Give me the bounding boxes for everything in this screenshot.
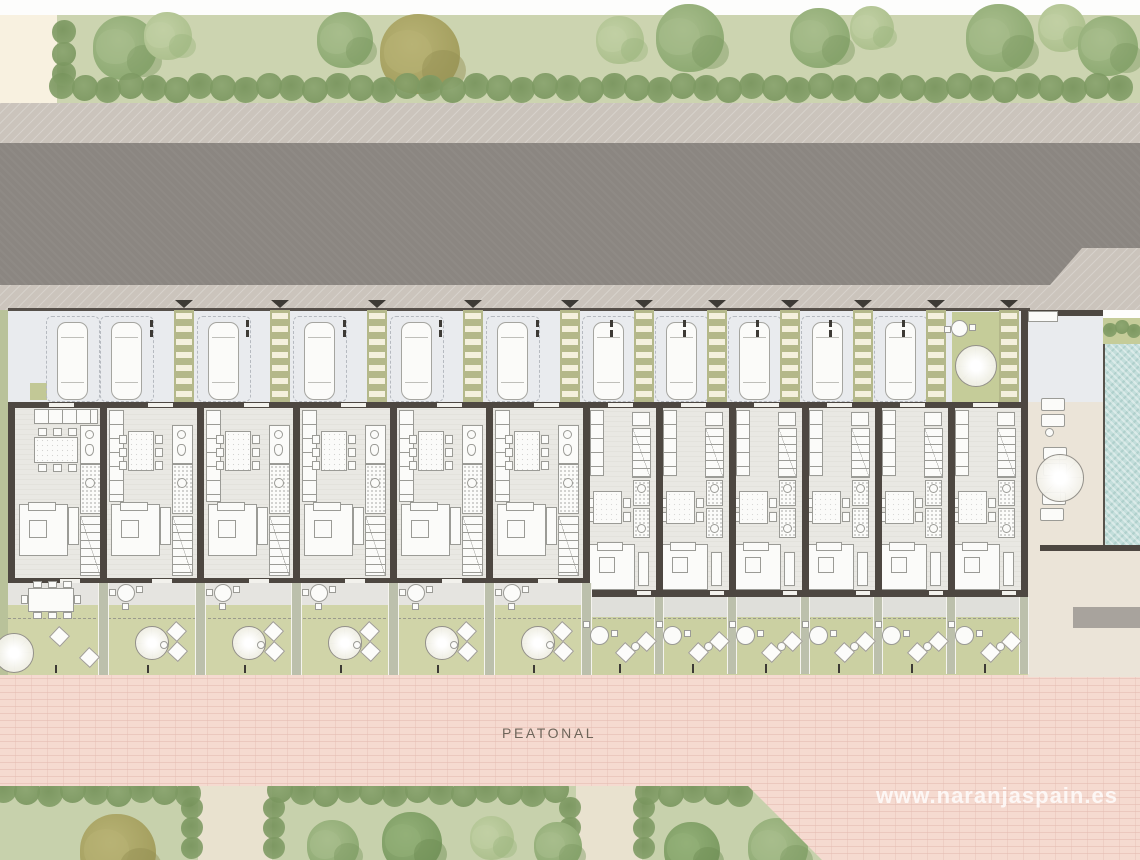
bistro-chair: [219, 603, 226, 610]
bistro-chair: [729, 621, 736, 628]
sofa-back: [217, 502, 245, 511]
chair: [445, 461, 453, 470]
parking-walkway: [270, 310, 290, 402]
shower-drain: [929, 524, 938, 533]
party-wall: [875, 402, 882, 597]
coffee-table: [964, 557, 980, 573]
chair: [38, 464, 47, 472]
bistro-chair: [903, 630, 910, 637]
coffee-table: [507, 520, 525, 538]
armchair: [353, 507, 364, 545]
entry-arrow: [368, 300, 386, 308]
party-wall: [948, 402, 955, 597]
bistro-table: [955, 626, 974, 645]
shower-room: [998, 508, 1015, 538]
coffee-table: [314, 520, 332, 538]
tree-shadow: [334, 843, 363, 860]
party-wall: [293, 402, 300, 584]
shower-drain: [85, 478, 95, 488]
chair: [252, 435, 260, 444]
fence-post: [838, 664, 840, 673]
bistro-chair: [233, 586, 240, 593]
dining-table: [321, 431, 347, 471]
fence-post: [765, 664, 767, 673]
coffee-table: [745, 557, 761, 573]
bay-tick: [610, 320, 613, 327]
fence-post: [244, 665, 246, 673]
chair: [915, 512, 923, 522]
staircase: [80, 516, 101, 576]
shower-room: [172, 464, 193, 514]
washbasin: [783, 484, 792, 493]
window: [754, 403, 779, 407]
fence-post: [533, 665, 535, 673]
washbasin: [710, 484, 719, 493]
sofa-back: [670, 542, 696, 551]
armchair: [930, 552, 941, 586]
bistro-table: [214, 584, 232, 602]
armchair: [1003, 552, 1014, 586]
entry-arrow: [464, 300, 482, 308]
car: [304, 322, 335, 400]
coffee-table: [121, 520, 139, 538]
cupboard: [924, 412, 942, 426]
shower-room: [269, 464, 290, 514]
parking-walkway: [174, 310, 194, 402]
chair: [696, 512, 704, 522]
chair: [48, 612, 57, 619]
chair: [21, 595, 28, 604]
shower-room: [365, 464, 386, 514]
chair: [33, 581, 42, 588]
bay-tick: [439, 320, 442, 327]
shower-drain: [783, 524, 792, 533]
cupboard: [778, 412, 796, 426]
shower-room: [558, 464, 579, 514]
chair: [348, 461, 356, 470]
party-wall: [729, 402, 736, 597]
bistro-chair: [206, 589, 213, 596]
shower-room: [80, 464, 101, 514]
staircase: [462, 516, 483, 576]
washbasin: [274, 430, 283, 439]
fence-post: [147, 665, 149, 673]
toilet: [274, 444, 283, 456]
tree-shadow: [493, 836, 517, 858]
garden-fence: [484, 583, 495, 675]
dining-table: [812, 491, 841, 524]
car: [739, 322, 770, 400]
garden-side-table: [353, 641, 361, 649]
armchair: [257, 507, 268, 545]
chair: [445, 435, 453, 444]
walkway-paving: [272, 313, 288, 399]
chair: [505, 435, 513, 444]
chair: [541, 461, 549, 470]
chair: [119, 461, 127, 470]
entry-arrow: [175, 300, 193, 308]
car: [208, 322, 239, 400]
shower-drain: [710, 524, 719, 533]
coffee-table: [411, 520, 429, 538]
staircase: [172, 516, 193, 576]
dining-table: [958, 491, 987, 524]
walkway-paving: [709, 313, 725, 399]
entry-arrow: [781, 300, 799, 308]
hedge-bush: [263, 837, 285, 859]
chair: [38, 428, 47, 436]
tree-shadow: [414, 839, 447, 860]
parking-walkway: [780, 310, 800, 402]
chair: [119, 435, 127, 444]
window: [973, 403, 998, 407]
staircase: [851, 428, 870, 478]
armchair: [68, 507, 79, 545]
kitchen-counter: [809, 410, 823, 476]
bistro-chair: [412, 603, 419, 610]
shower-drain: [1002, 524, 1011, 533]
walkway-paving: [1001, 313, 1017, 399]
chair: [696, 498, 704, 508]
walkway-paving: [928, 313, 944, 399]
coffee-table: [29, 520, 47, 538]
chair: [33, 612, 42, 619]
dining-table: [885, 491, 914, 524]
garden-side-table: [257, 641, 265, 649]
garden-dining-table: [28, 588, 74, 612]
walkway-paving: [562, 313, 578, 399]
washbasin: [85, 430, 94, 439]
hedge-bush: [263, 797, 285, 819]
chair: [252, 461, 260, 470]
party-wall: [1021, 310, 1028, 597]
coffee-table: [599, 557, 615, 573]
shower-drain: [370, 478, 380, 488]
car: [57, 322, 88, 400]
chair: [541, 448, 549, 457]
bistro-table: [117, 584, 135, 602]
coffee-table: [891, 557, 907, 573]
bay-tick: [683, 320, 686, 327]
car: [401, 322, 432, 400]
chair: [119, 448, 127, 457]
party-wall: [486, 402, 493, 584]
entry-arrow: [854, 300, 872, 308]
chair: [505, 448, 513, 457]
fence-post: [619, 664, 621, 673]
dining-table: [34, 437, 78, 463]
hedge-bush: [263, 817, 285, 839]
door-opening: [637, 591, 651, 595]
bistro-chair: [426, 586, 433, 593]
chair: [312, 448, 320, 457]
bistro-table: [503, 584, 521, 602]
dining-table: [514, 431, 540, 471]
left-hedge-strip: [0, 310, 8, 675]
staircase: [778, 428, 797, 478]
watermark: www.naranjaspain.es: [876, 783, 1118, 809]
walkway-paving: [176, 313, 192, 399]
chair: [63, 581, 72, 588]
staircase: [632, 428, 651, 478]
parking-walkway: [634, 310, 654, 402]
chair: [623, 512, 631, 522]
toilet: [85, 444, 94, 456]
bistro-chair: [399, 589, 406, 596]
staircase: [269, 516, 290, 576]
bistro-chair: [802, 621, 809, 628]
fence-post: [437, 665, 439, 673]
chair: [53, 428, 62, 436]
parking-walkway: [560, 310, 580, 402]
tree-shadow: [692, 35, 729, 69]
armchair: [450, 507, 461, 545]
door-opening: [783, 591, 797, 595]
steps-block: [1073, 607, 1140, 628]
chair: [68, 428, 77, 436]
parasol: [1036, 454, 1084, 502]
window: [49, 403, 74, 407]
party-wall: [583, 402, 590, 597]
walkway-paving: [636, 313, 652, 399]
south-garden-band: [0, 786, 822, 860]
bistro-chair: [948, 621, 955, 628]
armchair: [857, 552, 868, 586]
bay-tick: [756, 330, 759, 337]
sofa-back: [313, 502, 341, 511]
party-wall: [8, 402, 15, 584]
bistro-chair: [944, 326, 951, 333]
washbasin: [929, 484, 938, 493]
side-table: [1045, 428, 1054, 437]
chair: [68, 464, 77, 472]
chair: [348, 435, 356, 444]
shower-room: [779, 508, 796, 538]
chair: [74, 595, 81, 604]
sofa-back: [506, 502, 534, 511]
door-opening: [1002, 591, 1016, 595]
bistro-table: [736, 626, 755, 645]
dining-table: [418, 431, 444, 471]
bay-tick: [150, 320, 153, 327]
bistro-chair: [976, 630, 983, 637]
washbasin: [467, 430, 476, 439]
shower-drain: [467, 478, 477, 488]
staircase: [705, 428, 724, 478]
hedge-bush: [1127, 324, 1140, 338]
window: [681, 403, 706, 407]
coffee-table: [218, 520, 236, 538]
bay-tick: [246, 320, 249, 327]
washbasin: [563, 430, 572, 439]
sofa-back: [120, 502, 148, 511]
coffee-table: [672, 557, 688, 573]
staircase: [365, 516, 386, 576]
chair: [63, 612, 72, 619]
car: [666, 322, 697, 400]
car: [111, 322, 142, 400]
chair: [409, 435, 417, 444]
cupboard: [851, 412, 869, 426]
bay-tick: [610, 330, 613, 337]
garden-path: [198, 786, 272, 860]
parking-walkway: [367, 310, 387, 402]
staircase: [558, 516, 579, 576]
bistro-chair: [757, 630, 764, 637]
chair: [842, 498, 850, 508]
chair: [216, 435, 224, 444]
sun-lounger: [1041, 398, 1065, 411]
bay-tick: [756, 320, 759, 327]
bistro-chair: [875, 621, 882, 628]
washbasin: [370, 430, 379, 439]
kitchen-counter: [34, 409, 98, 424]
tree-shadow: [169, 34, 195, 58]
chair: [988, 512, 996, 522]
window: [437, 403, 462, 407]
bistro-chair: [302, 589, 309, 596]
bistro-chair: [656, 621, 663, 628]
chair: [155, 435, 163, 444]
kitchen-counter: [736, 410, 750, 476]
cupboard: [632, 412, 650, 426]
armchair: [546, 507, 557, 545]
chair: [155, 461, 163, 470]
chair: [312, 461, 320, 470]
bistro-chair: [969, 324, 976, 331]
shower-drain: [177, 478, 187, 488]
bistro-table: [809, 626, 828, 645]
sofa-back: [889, 542, 915, 551]
party-wall: [802, 402, 809, 597]
chair: [348, 448, 356, 457]
shower-drain: [563, 478, 573, 488]
parking-walkway: [999, 310, 1019, 402]
chair: [409, 461, 417, 470]
fence-post: [55, 665, 57, 673]
fence-post: [692, 664, 694, 673]
window: [534, 403, 559, 407]
tree-shadow: [1002, 35, 1039, 69]
road: [0, 143, 1140, 285]
bistro-chair: [136, 586, 143, 593]
bistro-table: [310, 584, 328, 602]
window: [827, 403, 852, 407]
bay-tick: [150, 330, 153, 337]
bistro-chair: [109, 589, 116, 596]
courtyard-wall: [1040, 545, 1140, 551]
shower-room: [633, 508, 650, 538]
chair: [252, 448, 260, 457]
corner-parking: [1028, 316, 1103, 402]
garden-fence: [388, 583, 399, 675]
entry-arrow: [927, 300, 945, 308]
chair: [915, 498, 923, 508]
dining-table: [666, 491, 695, 524]
chair: [409, 448, 417, 457]
shower-room: [462, 464, 483, 514]
bay-tick: [683, 330, 686, 337]
armchair: [638, 552, 649, 586]
fence-post: [340, 665, 342, 673]
garden-fence: [581, 583, 592, 675]
bay-tick: [439, 330, 442, 337]
chair: [988, 498, 996, 508]
chair: [769, 512, 777, 522]
entry-arrow: [561, 300, 579, 308]
chair: [155, 448, 163, 457]
parking-top-wall: [8, 308, 1030, 311]
kitchen-counter: [590, 410, 604, 476]
hedge-bush: [633, 837, 655, 859]
bistro-chair: [495, 589, 502, 596]
window: [244, 403, 269, 407]
shower-room: [925, 508, 942, 538]
car: [497, 322, 528, 400]
sidewalk-north: [0, 103, 1140, 143]
tree-shadow: [346, 37, 377, 65]
sofa-back: [743, 542, 769, 551]
window: [900, 403, 925, 407]
bay-tick: [829, 330, 832, 337]
garden-fence: [1019, 597, 1029, 674]
parking-walkway: [853, 310, 873, 402]
cupboard: [705, 412, 723, 426]
kitchen-counter: [663, 410, 677, 476]
parking-walkway: [926, 310, 946, 402]
bay-tick: [536, 330, 539, 337]
armchair: [160, 507, 171, 545]
bistro-table: [590, 626, 609, 645]
walkway-paving: [369, 313, 385, 399]
kitchen-counter: [955, 410, 969, 476]
tree-shadow: [822, 35, 855, 65]
washbasin: [637, 484, 646, 493]
car: [593, 322, 624, 400]
sofa-back: [28, 502, 56, 511]
entry-arrow: [708, 300, 726, 308]
bistro-chair: [830, 630, 837, 637]
fence-post: [911, 664, 913, 673]
staircase: [924, 428, 943, 478]
peatonal-label: PEATONAL: [502, 725, 596, 741]
chair: [48, 581, 57, 588]
shower-drain: [274, 478, 284, 488]
planter-box: [30, 383, 47, 400]
bistro-chair: [122, 603, 129, 610]
chair: [541, 435, 549, 444]
car: [885, 322, 916, 400]
bistro-chair: [508, 603, 515, 610]
washbasin: [856, 484, 865, 493]
bistro-table: [407, 584, 425, 602]
armchair: [784, 552, 795, 586]
walkway-paving: [782, 313, 798, 399]
car: [812, 322, 843, 400]
chair: [216, 448, 224, 457]
armchair: [711, 552, 722, 586]
walkway-paving: [465, 313, 481, 399]
chair: [769, 498, 777, 508]
chair: [623, 498, 631, 508]
bistro-chair: [684, 630, 691, 637]
chair: [842, 512, 850, 522]
party-wall: [100, 402, 107, 584]
garden-fence: [98, 583, 109, 675]
sofa-back: [816, 542, 842, 551]
party-wall: [656, 402, 663, 597]
garden-fence: [291, 583, 302, 675]
